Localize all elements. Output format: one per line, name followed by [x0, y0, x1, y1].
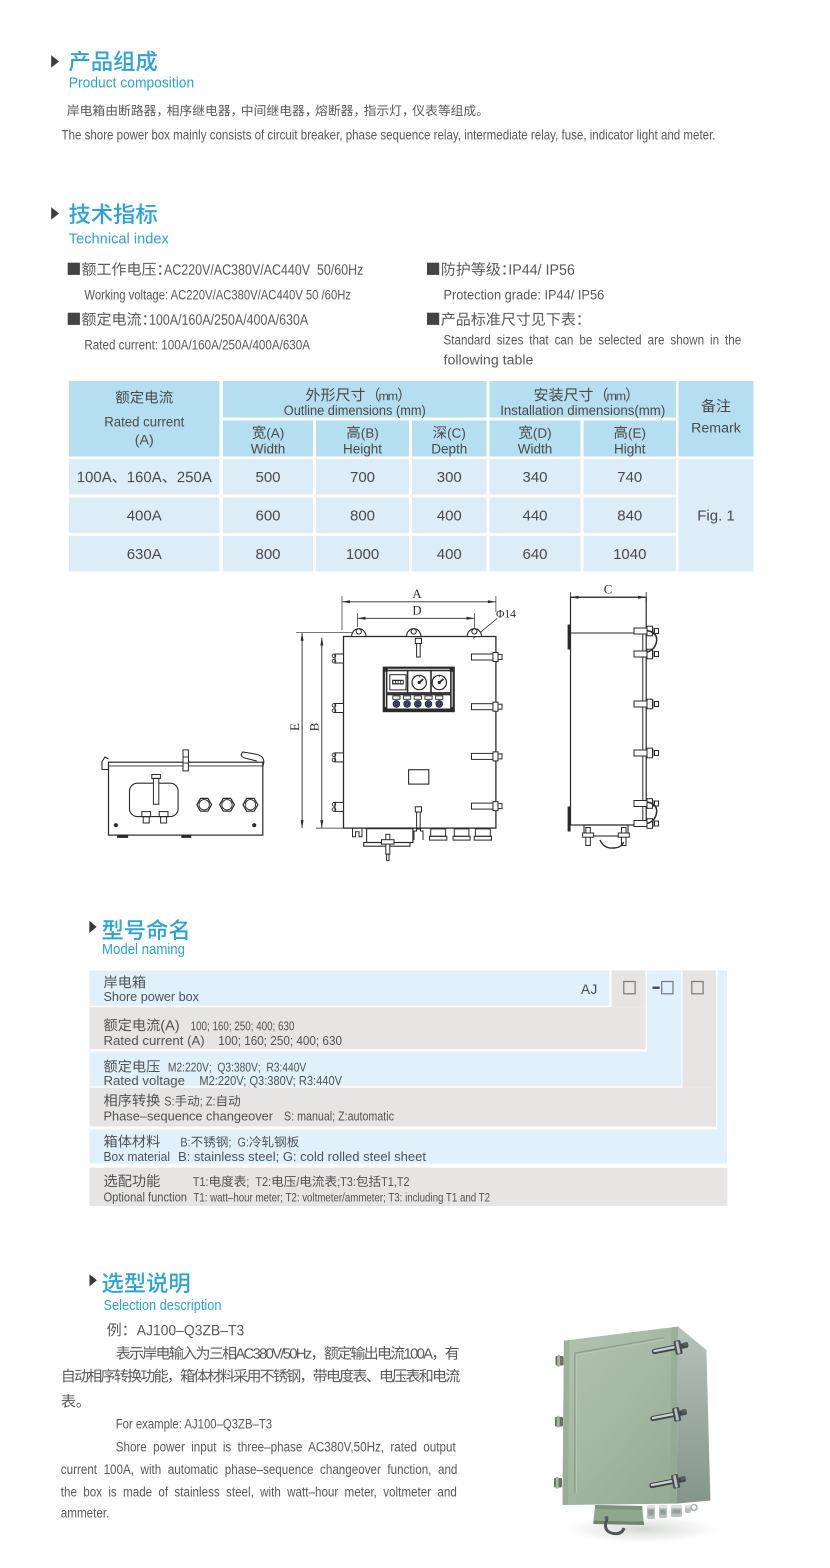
svg-text:Rated current: Rated current [104, 414, 184, 430]
svg-text:440: 440 [522, 508, 547, 525]
svg-text:following table: following table [444, 352, 534, 368]
svg-text:The shore power box mainly con: The shore power box mainly consists of c… [62, 128, 716, 143]
svg-text:Fig. 1: Fig. 1 [697, 508, 735, 525]
svg-text:840: 840 [617, 508, 642, 525]
svg-text:Shore power box: Shore power box [104, 989, 200, 1004]
svg-text:630A: 630A [127, 546, 162, 563]
svg-text:Technical index: Technical index [69, 231, 170, 247]
svg-text:700: 700 [350, 469, 375, 486]
svg-text:Φ14: Φ14 [496, 609, 516, 621]
svg-text:Shore power input is three–pha: Shore power input is three–phase AC380V,… [116, 1440, 456, 1455]
svg-text:Installation dimensions(mm): Installation dimensions(mm) [500, 403, 665, 418]
svg-text:Working voltage: AC220V/AC380V: Working voltage: AC220V/AC380V/AC440V 50… [84, 288, 351, 304]
svg-text:100; 160; 250; 400; 630: 100; 160; 250; 400; 630 [218, 1033, 342, 1048]
svg-text:Rated current (A): Rated current (A) [104, 1033, 205, 1048]
svg-text:Product composition: Product composition [69, 75, 194, 91]
svg-text:400: 400 [437, 546, 462, 563]
svg-text:400A: 400A [127, 508, 162, 525]
svg-text:640: 640 [522, 546, 547, 563]
svg-text:M2:220V; Q3:380V; R3:440V: M2:220V; Q3:380V; R3:440V [199, 1073, 342, 1088]
svg-text:Width: Width [251, 441, 286, 456]
svg-text:400: 400 [437, 508, 462, 525]
svg-text:Height: Height [343, 441, 382, 456]
svg-text:the box is made of stainless s: the box is made of stainless steel, with… [61, 1485, 457, 1500]
svg-text:current 100A, with automatic p: current 100A, with automatic phase–seque… [61, 1462, 458, 1477]
svg-text:800: 800 [350, 508, 375, 525]
svg-text:E: E [287, 723, 302, 731]
svg-text:D: D [412, 604, 421, 618]
svg-text:A: A [412, 587, 422, 601]
svg-text:Optional function: Optional function [104, 1190, 188, 1205]
svg-text:300: 300 [437, 469, 462, 486]
svg-text:Outline dimensions (mm): Outline dimensions (mm) [284, 403, 426, 418]
svg-text:Width: Width [518, 441, 553, 456]
svg-text:Phase–sequence changeover: Phase–sequence changeover [104, 1109, 274, 1124]
svg-text:340: 340 [522, 469, 547, 486]
svg-text:(A): (A) [135, 432, 154, 448]
svg-text:740: 740 [617, 469, 642, 486]
svg-text:1000: 1000 [346, 546, 379, 563]
svg-text:Box material: Box material [104, 1149, 171, 1164]
svg-text:For example: AJ100–Q3ZB–T3: For example: AJ100–Q3ZB–T3 [116, 1417, 272, 1433]
svg-text:B: B [307, 722, 322, 731]
svg-text:500: 500 [255, 469, 280, 486]
svg-text:Rated voltage: Rated voltage [104, 1073, 186, 1088]
svg-text:Rated current: 100A/160A/250A/: Rated current: 100A/160A/250A/400A/630A [84, 338, 310, 354]
svg-text:B: stainless steel; G: cold ro: B: stainless steel; G: cold rolled steel… [178, 1149, 426, 1164]
svg-text:T1: watt–hour meter; T2: voltm: T1: watt–hour meter; T2: voltmeter/ammet… [193, 1191, 490, 1205]
svg-text:C: C [604, 583, 613, 597]
svg-text:Selection description: Selection description [104, 1298, 222, 1314]
svg-text:Standard sizes that can be sel: Standard sizes that can be selected are … [444, 333, 742, 348]
svg-text:Depth: Depth [431, 441, 467, 456]
svg-text:Hight: Hight [614, 441, 646, 456]
svg-text:Protection grade: IP44/ IP56: Protection grade: IP44/ IP56 [444, 288, 605, 304]
svg-text:600: 600 [255, 508, 280, 525]
svg-text:1040: 1040 [613, 546, 646, 563]
svg-text:Model naming: Model naming [102, 942, 185, 958]
svg-text:Remark: Remark [691, 420, 742, 436]
svg-text:S: manual; Z:automatic: S: manual; Z:automatic [284, 1109, 394, 1124]
svg-text:800: 800 [255, 546, 280, 563]
svg-text:AJ: AJ [581, 982, 598, 997]
svg-text:ammeter.: ammeter. [61, 1506, 110, 1521]
